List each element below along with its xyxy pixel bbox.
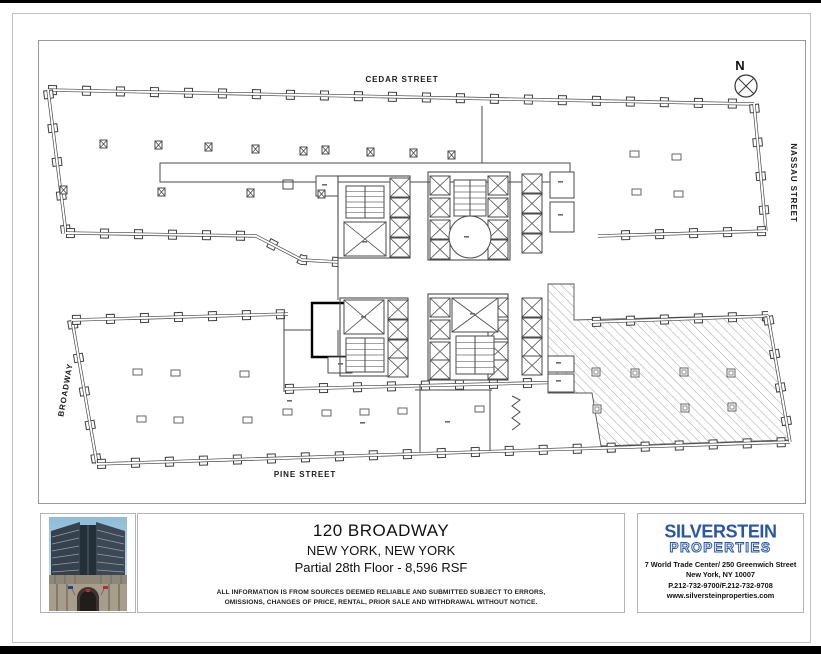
broker-phone: P.212-732-9700/F.212-732-9708 [638,581,803,592]
floor-plan: CEDAR STREET NASSAU STREET BROADWAY PINE… [38,40,804,502]
page-top-edge [0,0,821,3]
building-name: 120 BROADWAY [138,521,624,541]
broker-logo-properties: PROPERTIES [638,541,803,555]
broker-panel: SILVERSTEIN PROPERTIES 7 World Trade Cen… [637,513,804,613]
disclaimer-line-1: ALL INFORMATION IS FROM SOURCES DEEMED R… [138,588,624,598]
disclaimer-line-2: OMISSIONS, CHANGES OF PRICE, RENTAL, PRI… [138,598,624,608]
street-label-broadway: BROADWAY [56,363,74,418]
page-bottom-edge [0,646,821,654]
street-label-pine: PINE STREET [274,470,336,479]
building-photo-panel [40,513,136,613]
broker-website: www.silversteinproperties.com [638,591,803,602]
interior-partitions [160,106,574,452]
building-core [338,172,542,380]
building-photo [49,517,127,611]
broker-address-line2: New York, NY 10007 [638,570,803,581]
north-arrow-label: N [735,58,744,73]
broker-address-line1: 7 World Trade Center/ 250 Greenwich Stre… [638,560,803,571]
street-label-cedar: CEDAR STREET [365,75,438,84]
floor-availability: Partial 28th Floor - 8,596 RSF [138,560,624,575]
building-city: NEW YORK, NEW YORK [138,543,624,558]
hatched-available-area [548,284,789,446]
street-label-nassau: NASSAU STREET [789,143,798,222]
flyer-page: { "plan": { "streets": { "top": "CEDAR S… [0,0,821,654]
title-block: 120 BROADWAY NEW YORK, NEW YORK Partial … [137,513,625,613]
north-arrow-icon: N [735,58,757,97]
broker-logo-silverstein: SILVERSTEIN [638,522,803,541]
